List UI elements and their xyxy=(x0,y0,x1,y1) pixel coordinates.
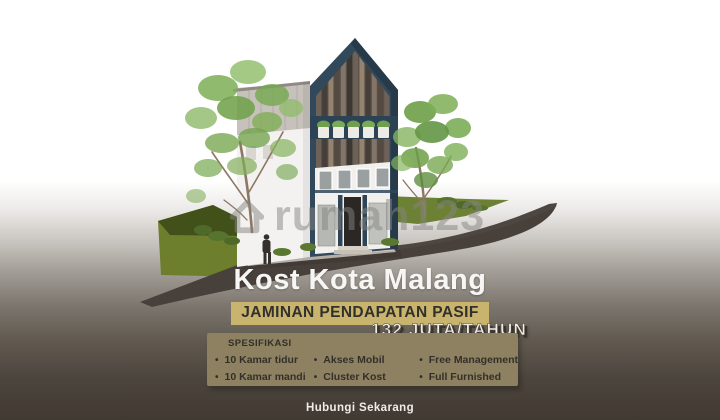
bullet-icon: • xyxy=(215,370,219,386)
property-flyer: rumah123 Kost Kota Malang JAMINAN PENDAP… xyxy=(0,0,720,420)
bullet-icon: • xyxy=(314,353,318,369)
spec-item-label: 10 Kamar tidur xyxy=(225,352,299,368)
planter-boxes xyxy=(317,121,390,139)
poster-title: Kost Kota Malang xyxy=(0,264,720,297)
spec-item-label: Full Furnished xyxy=(429,369,501,385)
specs-columns: • 10 Kamar tidur • 10 Kamar mandi • Akse… xyxy=(207,352,518,386)
specs-panel: SPESIFIKASI • 10 Kamar tidur • 10 Kamar … xyxy=(207,333,518,386)
specs-column-2: • Akses Mobil • Cluster Kost xyxy=(306,352,411,386)
contact-cta: Hubungi Sekarang xyxy=(0,402,720,414)
bullet-icon: • xyxy=(419,370,423,386)
bullet-icon: • xyxy=(215,353,219,369)
badge-row: JAMINAN PENDAPATAN PASIF xyxy=(0,302,720,325)
spec-item-label: 10 Kamar mandi xyxy=(225,369,306,385)
spec-item-label: Cluster Kost xyxy=(323,369,385,385)
bullet-icon: • xyxy=(314,370,318,386)
spec-item: • Free Management xyxy=(419,352,518,369)
specs-column-1: • 10 Kamar tidur • 10 Kamar mandi xyxy=(207,352,306,386)
spec-item-label: Free Management xyxy=(429,352,518,368)
bullet-icon: • xyxy=(419,353,423,369)
spec-item: • Cluster Kost xyxy=(314,369,411,386)
main-building xyxy=(310,38,398,257)
spec-item: • 10 Kamar tidur xyxy=(215,352,306,369)
spec-item: • Akses Mobil xyxy=(314,352,411,369)
spec-item: • Full Furnished xyxy=(419,369,518,386)
spec-item: • 10 Kamar mandi xyxy=(215,369,306,386)
spec-item-label: Akses Mobil xyxy=(323,352,384,368)
specs-column-3: • Free Management • Full Furnished xyxy=(411,352,518,386)
specs-heading: SPESIFIKASI xyxy=(228,338,292,349)
